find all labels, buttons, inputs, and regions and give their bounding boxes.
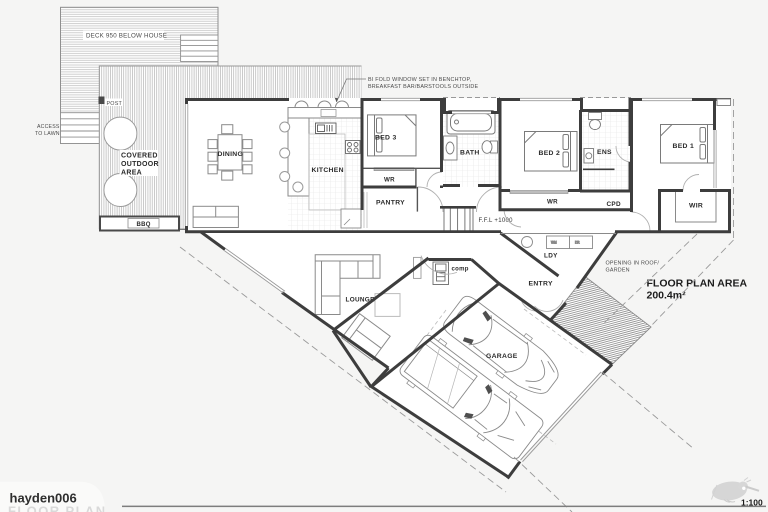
svg-text:200.4m²: 200.4m²	[647, 290, 687, 302]
svg-text:BATH: BATH	[460, 149, 480, 156]
svg-text:TO LAWN: TO LAWN	[35, 131, 60, 137]
svg-text:BBQ: BBQ	[137, 222, 151, 228]
svg-text:DINING: DINING	[218, 151, 244, 158]
svg-text:hayden006: hayden006	[10, 491, 77, 506]
svg-text:OPENING IN ROOF/: OPENING IN ROOF/	[606, 261, 660, 267]
svg-text:BED 1: BED 1	[673, 143, 695, 150]
svg-text:LDY: LDY	[544, 253, 558, 260]
svg-text:WR: WR	[547, 199, 558, 206]
svg-text:ENTRY: ENTRY	[529, 280, 553, 287]
svg-text:ENS: ENS	[597, 149, 612, 156]
svg-text:DR: DR	[575, 241, 580, 245]
svg-text:BREAKFAST BAR/BARSTOOLS OUTSID: BREAKFAST BAR/BARSTOOLS OUTSIDE	[368, 84, 478, 90]
svg-text:BED 2: BED 2	[539, 150, 561, 157]
svg-text:WR: WR	[384, 176, 395, 183]
svg-text:WIR: WIR	[689, 202, 703, 209]
svg-text:FLOOR PLAN AREA: FLOOR PLAN AREA	[647, 278, 748, 290]
svg-text:1:100: 1:100	[741, 498, 763, 508]
svg-text:BI FOLD WINDOW SET IN BENCHTOP: BI FOLD WINDOW SET IN BENCHTOP,	[368, 77, 472, 83]
svg-text:AREA: AREA	[121, 170, 142, 177]
svg-text:GARAGE: GARAGE	[486, 353, 518, 360]
svg-text:POST: POST	[107, 101, 123, 107]
svg-text:OUTDOOR: OUTDOOR	[121, 161, 159, 168]
svg-text:DECK 950 BELOW HOUSE: DECK 950 BELOW HOUSE	[86, 33, 167, 40]
svg-text:COVERED: COVERED	[121, 153, 158, 160]
svg-text:CPD: CPD	[607, 201, 621, 208]
svg-text:KITCHEN: KITCHEN	[312, 167, 344, 174]
svg-text:WM: WM	[551, 241, 557, 245]
svg-text:comp: comp	[452, 266, 469, 272]
svg-text:ACCESS: ACCESS	[37, 124, 60, 130]
svg-text:BED 3: BED 3	[375, 135, 397, 142]
svg-text:PANTRY: PANTRY	[376, 200, 405, 207]
svg-text:GARDEN: GARDEN	[606, 268, 630, 274]
